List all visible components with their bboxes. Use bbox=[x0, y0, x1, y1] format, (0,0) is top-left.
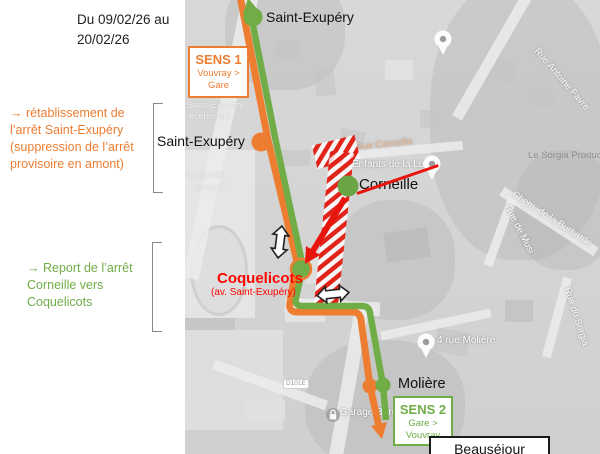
date-line1: Du 09/02/26 au bbox=[77, 10, 187, 30]
route-overlay bbox=[0, 0, 600, 454]
date-range: Du 09/02/26 au 20/02/26 bbox=[77, 10, 187, 51]
bracket-coquelicots bbox=[152, 242, 162, 332]
stop-dot-corneille bbox=[338, 176, 359, 197]
detour-map-slide: Rue Antoine Favre Le Sorgia Producti Che… bbox=[0, 0, 600, 454]
note-saint-exupery: → rétablissement de l’arrêt Saint-Exupér… bbox=[10, 105, 156, 173]
map-pin-icon bbox=[418, 334, 435, 359]
date-line2: 20/02/26 bbox=[77, 30, 187, 50]
roadworks-hatch-zone bbox=[312, 135, 360, 306]
map-pin-icon bbox=[435, 31, 452, 56]
bracket-saint-exupery bbox=[153, 103, 163, 193]
stop-dot-saint-exupery-green bbox=[244, 8, 263, 27]
stop-dot-saint-exupery-orange bbox=[252, 133, 271, 152]
stop-dot-moliere-green bbox=[376, 378, 391, 393]
padlock-icon bbox=[326, 408, 340, 422]
map-pin-icon bbox=[424, 156, 441, 181]
note-corneille-report: → Report de l’arrêt Corneille vers Coque… bbox=[27, 260, 149, 311]
route-orange-arrowhead bbox=[371, 422, 387, 439]
stop-dot-moliere-orange bbox=[363, 379, 378, 394]
